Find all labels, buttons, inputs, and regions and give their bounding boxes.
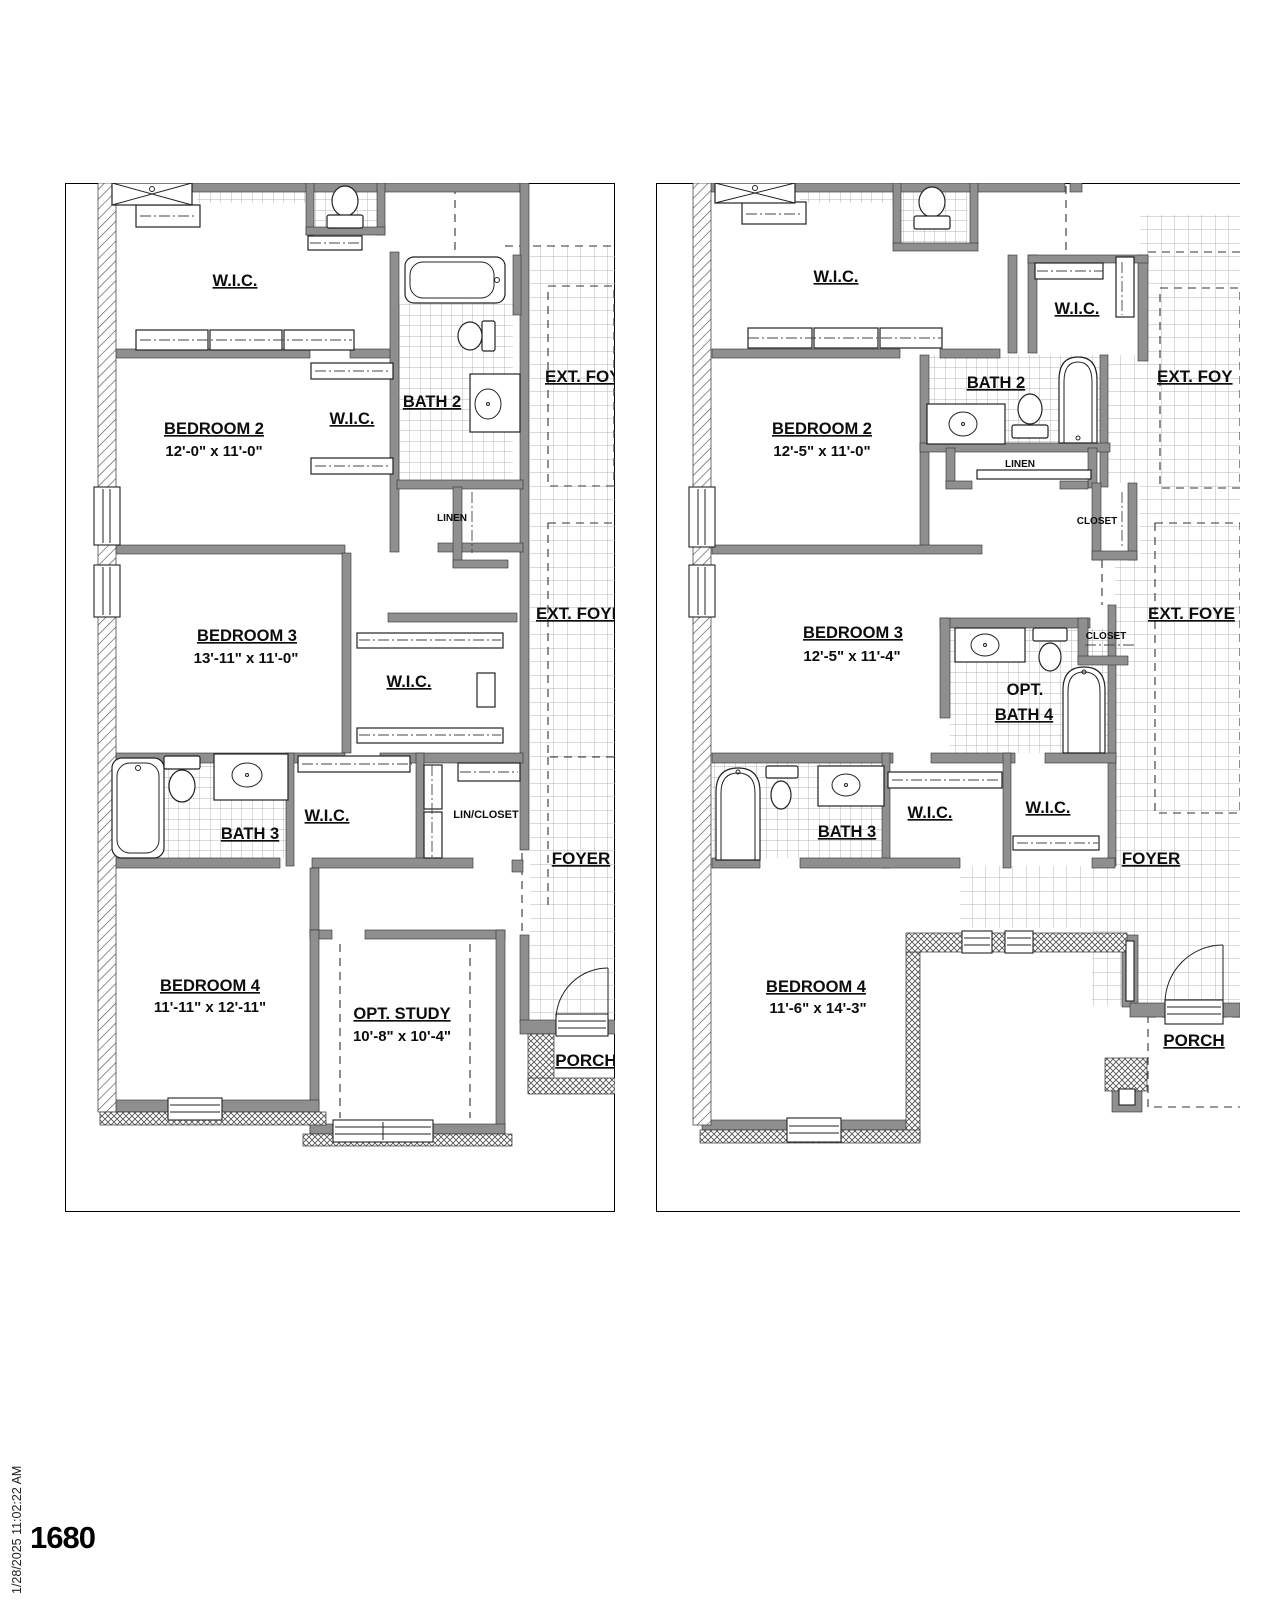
plan-a-bedroom2-dims: 12'-0" x 11'-0" xyxy=(165,443,262,460)
plan-a-bedroom2-label: BEDROOM 2 xyxy=(164,420,264,438)
plan-a-wic-primary-label: W.I.C. xyxy=(213,272,258,290)
plan-a-wic-bedroom3-label: W.I.C. xyxy=(387,673,432,691)
bathtub-symbol xyxy=(112,758,164,858)
plan-a-wic-hall-label: W.I.C. xyxy=(305,807,350,825)
plan-b-bedroom3-label: BEDROOM 3 xyxy=(803,624,903,642)
sink-vanity-symbol xyxy=(214,754,288,800)
plan-b-opt-bath4-line1: OPT. xyxy=(1007,681,1044,699)
plan-b-bath2-label: BATH 2 xyxy=(967,374,1025,392)
plan-comparison-sheet: W.I.C. BEDROOM 2 12'-0" x 11'-0" W.I.C. … xyxy=(0,0,1280,1600)
sink-vanity-symbol xyxy=(818,766,884,806)
sink-vanity-symbol xyxy=(927,404,1005,444)
plan-b-bedroom4-dims: 11'-6" x 14'-3" xyxy=(769,1000,866,1017)
bathtub-symbol xyxy=(716,768,760,860)
plan-a-porch-label: PORCH xyxy=(555,1051,615,1070)
floor-plan-a: W.I.C. BEDROOM 2 12'-0" x 11'-0" W.I.C. … xyxy=(65,183,615,1212)
plan-b-linen-label: LINEN xyxy=(1005,459,1035,470)
plan-b-wic-primary-label: W.I.C. xyxy=(814,268,859,286)
plan-b-ext-foyer-lower-label: EXT. FOYE xyxy=(1148,604,1235,623)
plan-a-linen-label: LINEN xyxy=(437,513,467,524)
plan-b-bedroom3-dims: 12'-5" x 11'-4" xyxy=(803,648,900,665)
bathtub-symbol xyxy=(1063,667,1105,753)
plan-a-foyer-label: FOYER xyxy=(552,849,611,868)
plan-a-bath2-label: BATH 2 xyxy=(403,393,461,411)
shower-symbol xyxy=(715,183,795,203)
plan-a-bedroom3-label: BEDROOM 3 xyxy=(197,627,297,645)
toilet-symbol xyxy=(458,321,495,351)
plan-b-wic-hall-right-label: W.I.C. xyxy=(1026,799,1071,817)
plot-timestamp: 1/28/2025 11:02:22 AM xyxy=(10,1466,24,1594)
plan-b-bedroom4-label: BEDROOM 4 xyxy=(766,978,867,996)
plan-a-bedroom3-dims: 13'-11" x 11'-0" xyxy=(194,650,299,667)
plan-b-closet-upper-label: CLOSET xyxy=(1077,516,1118,527)
plan-a-bath3-label: BATH 3 xyxy=(221,825,279,843)
bathtub-symbol xyxy=(1059,357,1097,443)
plan-b-wic-hall-left-label: W.I.C. xyxy=(908,804,953,822)
plan-a-lin-closet-label: LIN/CLOSET xyxy=(453,809,519,821)
plan-b-bedroom2-dims: 12'-5" x 11'-0" xyxy=(773,443,870,460)
plan-a-bedroom4-dims: 11'-11" x 12'-11" xyxy=(154,999,266,1016)
plan-a-bedroom4-label: BEDROOM 4 xyxy=(160,977,261,995)
shower-symbol xyxy=(112,183,192,205)
sink-vanity-symbol xyxy=(955,628,1025,662)
plan-a-ext-foyer-upper-label: EXT. FOY xyxy=(545,367,615,386)
plan-b-opt-bath4-line2: BATH 4 xyxy=(995,706,1054,724)
plan-b-bedroom2-label: BEDROOM 2 xyxy=(772,420,872,438)
sink-vanity-symbol xyxy=(470,374,520,432)
plan-a-ext-foyer-lower-label: EXT. FOYE xyxy=(536,604,615,623)
floor-plan-b: W.I.C. W.I.C. BEDROOM 2 12'-5" x 11'-0" … xyxy=(656,183,1240,1212)
plan-a-opt-study-label: OPT. STUDY xyxy=(353,1005,450,1023)
plan-b-closet-bath4-label: CLOSET xyxy=(1086,631,1127,642)
bathtub-symbol xyxy=(405,257,505,303)
plan-b-ext-foyer-upper-label: EXT. FOY xyxy=(1157,367,1233,386)
plan-b-wic-secondary-label: W.I.C. xyxy=(1055,300,1100,318)
plan-b-bath3-label: BATH 3 xyxy=(818,823,876,841)
plan-b-porch-label: PORCH xyxy=(1163,1031,1224,1050)
plan-a-wic-bedroom2-label: W.I.C. xyxy=(330,410,375,428)
plan-b-foyer-label: FOYER xyxy=(1122,849,1181,868)
sheet-number: 1680 xyxy=(30,1520,95,1556)
plan-a-opt-study-dims: 10'-8" x 10'-4" xyxy=(353,1028,451,1045)
